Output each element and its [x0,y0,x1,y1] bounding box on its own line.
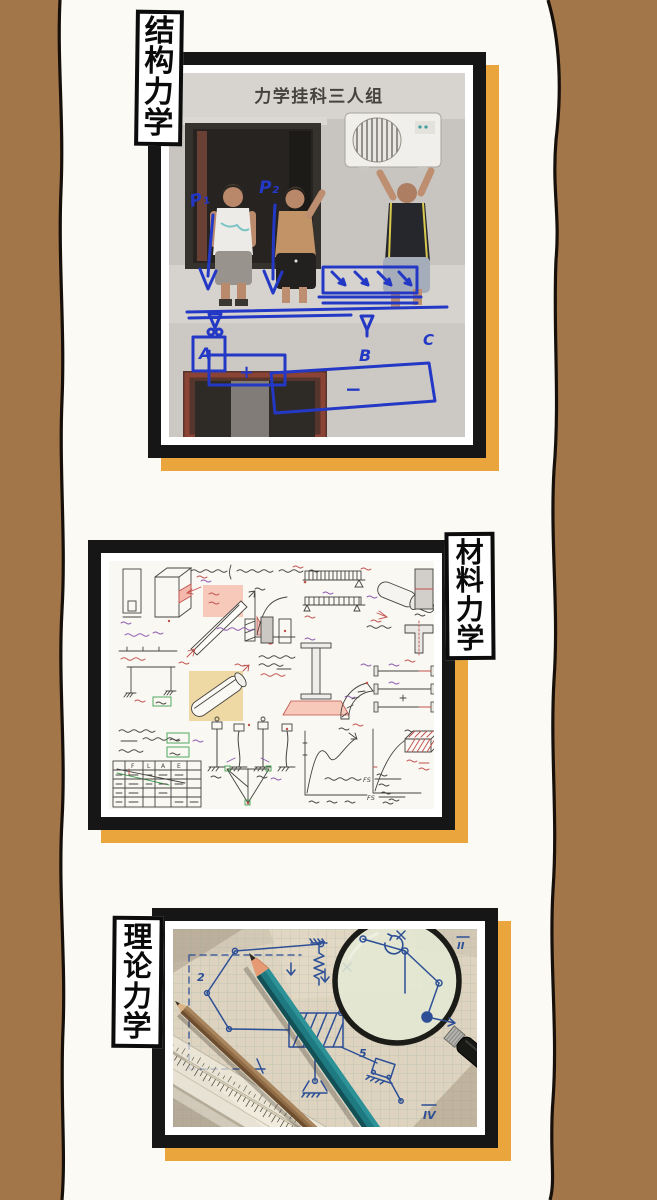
svg-text:B: B [359,346,371,365]
force-label-p2: P₂ [259,178,279,198]
photo-frame-theoretical: 2 3 5 IV [152,908,498,1148]
force-label-p1: P₁ [188,188,212,212]
svg-text:2: 2 [197,971,205,984]
photo-frame-structural: 力学挂科三人组 [148,52,486,458]
label-structural-mechanics: 结 构 力 学 [134,10,184,147]
label-char: 论 [123,952,152,982]
label-char: 学 [143,108,173,139]
svg-text:+: + [239,362,254,383]
notes-tan-cylinder [188,664,249,721]
theoretical-photo: 2 3 5 IV [173,929,477,1127]
svg-text:II: II [457,941,465,952]
label-char: 学 [456,624,484,653]
svg-text:−: − [345,377,362,401]
label-char: 力 [456,596,484,625]
svg-text:FS: FS [363,776,371,784]
label-char: 理 [123,923,152,953]
svg-text:FS: FS [367,794,375,802]
materials-notes: F L A E [109,561,434,809]
label-char: 力 [144,78,174,109]
label-char: 料 [456,567,484,596]
label-char: 力 [123,982,152,1012]
end-label-C: C [423,331,434,349]
air-conditioner [345,113,441,173]
lower-window [183,371,327,437]
svg-text:5: 5 [359,1047,367,1060]
label-char: 材 [455,539,483,568]
label-char: 学 [122,1011,151,1041]
svg-text:IV: IV [423,1109,437,1122]
structural-photo: 力学挂科三人组 [169,73,465,437]
label-char: 结 [144,17,174,48]
right-brown-panel [548,0,657,1200]
photo-frame-materials: F L A E [88,540,455,830]
svg-text:F: F [131,763,135,770]
photo-caption: 力学挂科三人组 [254,86,384,107]
svg-text:E: E [177,763,181,770]
label-materials-mechanics: 材 料 力 学 [444,532,495,660]
person-right [380,171,431,307]
label-char: 构 [144,47,174,78]
left-brown-panel [0,0,64,1200]
label-theoretical-mechanics: 理 论 力 学 [111,916,163,1049]
